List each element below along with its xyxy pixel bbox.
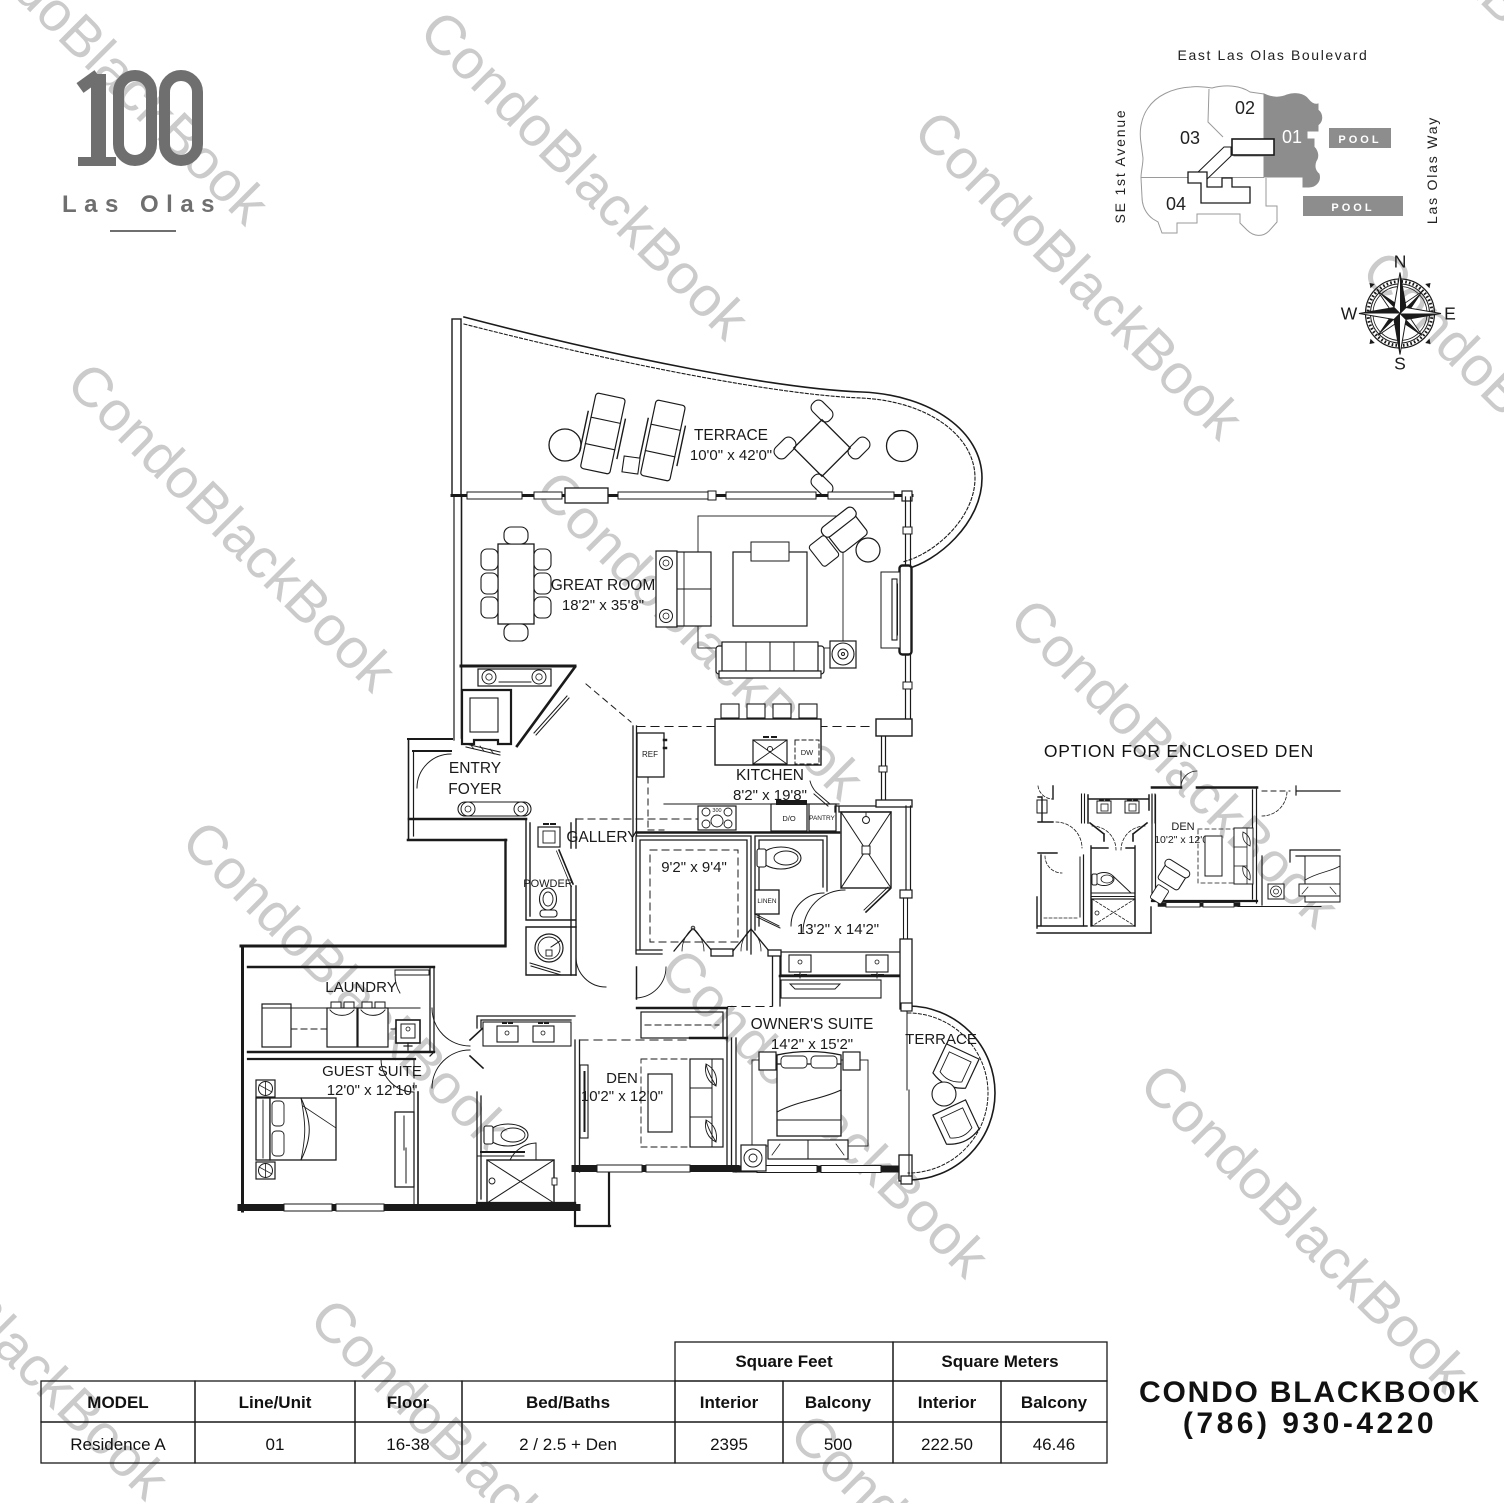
svg-text:16-38: 16-38 xyxy=(386,1435,429,1454)
svg-text:12'0" x 12'10": 12'0" x 12'10" xyxy=(327,1082,418,1099)
svg-text:W: W xyxy=(1341,304,1358,324)
svg-text:OPTION FOR ENCLOSED DEN: OPTION FOR ENCLOSED DEN xyxy=(1044,741,1314,761)
svg-text:10'2" x 12'0": 10'2" x 12'0" xyxy=(1154,834,1212,846)
svg-text:14'2" x 15'2": 14'2" x 15'2" xyxy=(771,1036,853,1053)
svg-text:POOL: POOL xyxy=(1338,134,1381,146)
svg-text:DEN: DEN xyxy=(1171,821,1194,833)
svg-text:46.46: 46.46 xyxy=(1033,1435,1076,1454)
svg-text:OWNER'S SUITE: OWNER'S SUITE xyxy=(751,1016,874,1033)
svg-text:01: 01 xyxy=(266,1435,285,1454)
svg-text:Square Meters: Square Meters xyxy=(941,1352,1058,1371)
svg-text:Line/Unit: Line/Unit xyxy=(239,1393,312,1412)
svg-text:N: N xyxy=(1394,252,1407,272)
svg-text:Interior: Interior xyxy=(918,1393,977,1412)
svg-text:(786) 930-4220: (786) 930-4220 xyxy=(1183,1407,1437,1440)
svg-text:GREAT ROOM: GREAT ROOM xyxy=(551,577,656,594)
svg-text:10'2" x 12'0": 10'2" x 12'0" xyxy=(581,1088,663,1105)
svg-text:9'2" x 9'4": 9'2" x 9'4" xyxy=(661,859,727,876)
svg-text:04: 04 xyxy=(1166,194,1186,214)
svg-text:DW: DW xyxy=(801,748,814,757)
svg-text:10'0" x 42'0": 10'0" x 42'0" xyxy=(690,447,772,464)
svg-text:Interior: Interior xyxy=(700,1393,759,1412)
svg-text:REF: REF xyxy=(642,750,658,759)
svg-text:GUEST SUITE: GUEST SUITE xyxy=(322,1063,422,1080)
svg-text:13'2" x 14'2": 13'2" x 14'2" xyxy=(797,921,879,938)
svg-text:MODEL: MODEL xyxy=(87,1393,148,1412)
svg-text:01: 01 xyxy=(1282,127,1302,147)
svg-text:Residence A: Residence A xyxy=(70,1435,166,1454)
svg-text:POOL: POOL xyxy=(1331,202,1374,214)
svg-text:TERRACE: TERRACE xyxy=(694,427,768,444)
svg-text:2395: 2395 xyxy=(710,1435,748,1454)
svg-text:Balcony: Balcony xyxy=(805,1393,872,1412)
svg-text:LINEN: LINEN xyxy=(757,898,776,905)
svg-text:ENTRY: ENTRY xyxy=(449,760,501,777)
svg-text:300: 300 xyxy=(712,808,721,814)
svg-text:DEN: DEN xyxy=(606,1070,638,1087)
svg-text:Balcony: Balcony xyxy=(1021,1393,1088,1412)
svg-text:Las Olas Way: Las Olas Way xyxy=(1424,116,1440,224)
svg-text:TERRACE: TERRACE xyxy=(905,1031,977,1048)
svg-text:GALLERY: GALLERY xyxy=(566,829,637,846)
svg-text:Las Olas: Las Olas xyxy=(62,191,222,218)
svg-text:CONDO BLACKBOOK: CONDO BLACKBOOK xyxy=(1139,1376,1481,1409)
svg-text:02: 02 xyxy=(1235,98,1255,118)
svg-text:222.50: 222.50 xyxy=(921,1435,973,1454)
svg-text:S: S xyxy=(1394,354,1406,374)
svg-text:LAUNDRY: LAUNDRY xyxy=(325,979,396,996)
svg-text:FOYER: FOYER xyxy=(448,781,501,798)
svg-text:03: 03 xyxy=(1180,128,1200,148)
svg-text:East Las Olas Boulevard: East Las Olas Boulevard xyxy=(1178,47,1369,63)
svg-text:Bed/Baths: Bed/Baths xyxy=(526,1393,610,1412)
svg-text:18'2" x 35'8": 18'2" x 35'8" xyxy=(562,597,644,614)
svg-text:E: E xyxy=(1444,304,1456,324)
svg-text:Square Feet: Square Feet xyxy=(735,1352,833,1371)
svg-text:500: 500 xyxy=(824,1435,852,1454)
svg-text:2 / 2.5 + Den: 2 / 2.5 + Den xyxy=(519,1435,617,1454)
svg-text:KITCHEN: KITCHEN xyxy=(736,767,804,784)
svg-text:SE 1st Avenue: SE 1st Avenue xyxy=(1112,109,1128,224)
svg-text:D/O: D/O xyxy=(782,814,796,823)
svg-text:PANTRY: PANTRY xyxy=(809,815,835,822)
svg-text:Floor: Floor xyxy=(387,1393,430,1412)
